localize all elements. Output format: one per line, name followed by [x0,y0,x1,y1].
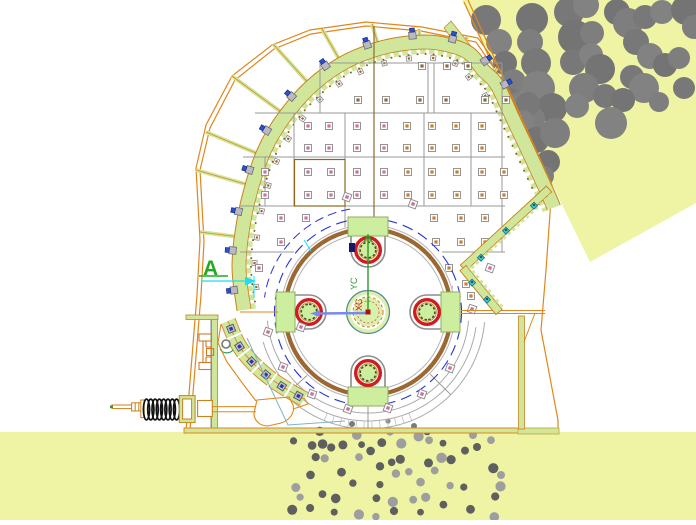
svg-text:YC: YC [349,277,359,290]
svg-text:XC: XC [354,298,364,311]
